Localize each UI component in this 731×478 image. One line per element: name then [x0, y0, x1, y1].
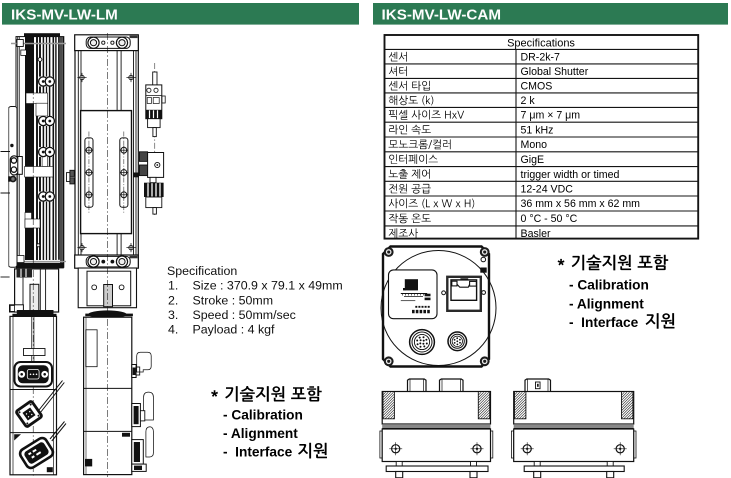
svg-text:- Calibration: - Calibration [223, 408, 303, 423]
svg-text:IKS-MV-LW-CAM: IKS-MV-LW-CAM [382, 7, 502, 24]
svg-text:- Interface: - Interface [223, 445, 293, 460]
svg-text:4.: 4. [168, 323, 178, 337]
svg-text:7 μm × 7 μm: 7 μm × 7 μm [521, 110, 581, 122]
svg-text:Specifications: Specifications [507, 38, 575, 50]
svg-text:Stroke : 50mm: Stroke : 50mm [193, 293, 274, 307]
svg-text:0 °C - 50 °C: 0 °C - 50 °C [521, 213, 578, 225]
svg-text:3.: 3. [168, 308, 178, 322]
svg-text:- Alignment: - Alignment [569, 297, 644, 312]
svg-text:2 k: 2 k [521, 95, 536, 107]
svg-text:Specification: Specification [167, 264, 237, 278]
svg-text:- Calibration: - Calibration [569, 278, 649, 293]
svg-text:51 kHz: 51 kHz [521, 124, 554, 136]
svg-text:GigE: GigE [521, 154, 545, 166]
svg-text:Mono: Mono [521, 139, 548, 151]
svg-text:36 mm x 56 mm x 62 mm: 36 mm x 56 mm x 62 mm [521, 198, 641, 210]
svg-text:DR-2k-7: DR-2k-7 [521, 52, 561, 64]
svg-text:CMOS: CMOS [521, 81, 553, 93]
svg-text:Payload : 4 kgf: Payload : 4 kgf [193, 323, 276, 337]
svg-text:IKS-MV-LW-LM: IKS-MV-LW-LM [11, 7, 118, 24]
svg-text:Size : 370.9 x 79.1 x 49mm: Size : 370.9 x 79.1 x 49mm [193, 279, 343, 293]
svg-text:12-24 VDC: 12-24 VDC [521, 184, 574, 196]
svg-text:Global Shutter: Global Shutter [521, 66, 589, 78]
svg-text:trigger width or timed: trigger width or timed [521, 169, 620, 181]
svg-text:2.: 2. [168, 293, 178, 307]
svg-text:Basler: Basler [521, 228, 551, 240]
svg-text:1.: 1. [168, 279, 178, 293]
svg-text:Speed : 50mm/sec: Speed : 50mm/sec [193, 308, 296, 322]
svg-text:- Interface: - Interface [569, 315, 639, 330]
svg-text:- Alignment: - Alignment [223, 426, 298, 441]
